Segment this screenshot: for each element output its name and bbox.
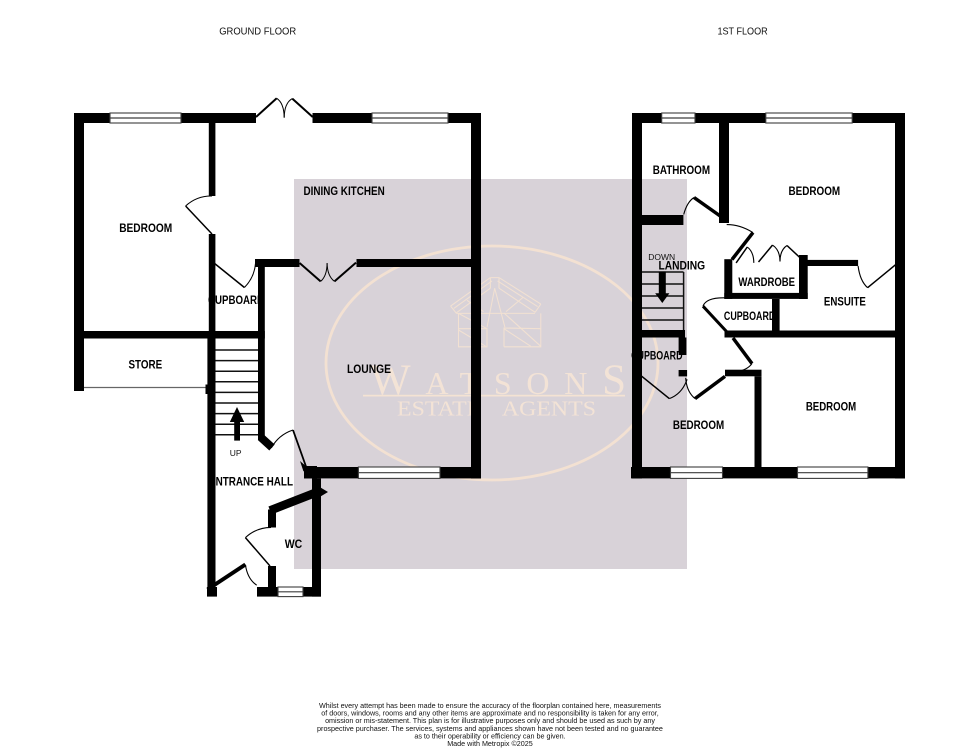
svg-text:LANDING: LANDING (658, 259, 705, 273)
svg-text:Made with Metropix ©2025: Made with Metropix ©2025 (447, 739, 533, 748)
svg-text:BEDROOM: BEDROOM (119, 221, 172, 235)
svg-text:BATHROOM: BATHROOM (653, 163, 710, 177)
svg-text:STORE: STORE (128, 357, 162, 371)
svg-text:UP: UP (230, 448, 242, 458)
svg-text:WC: WC (285, 537, 303, 551)
svg-text:WARDROBE: WARDROBE (738, 275, 795, 289)
svg-text:1ST FLOOR: 1ST FLOOR (717, 27, 767, 38)
svg-text:BEDROOM: BEDROOM (788, 184, 840, 198)
svg-text:DINING KITCHEN: DINING KITCHEN (304, 184, 385, 198)
svg-text:GROUND FLOOR: GROUND FLOOR (219, 27, 296, 38)
svg-text:BEDROOM: BEDROOM (806, 400, 856, 414)
svg-text:ESTATE AGENTS: ESTATE AGENTS (397, 397, 596, 421)
svg-text:CUPBOARD: CUPBOARD (208, 293, 264, 307)
svg-text:ENSUITE: ENSUITE (824, 294, 866, 308)
svg-text:ENTRANCE HALL: ENTRANCE HALL (209, 474, 293, 488)
svg-text:BEDROOM: BEDROOM (673, 418, 724, 432)
svg-text:CUPBOARD: CUPBOARD (724, 309, 776, 323)
svg-text:LOUNGE: LOUNGE (347, 362, 391, 376)
